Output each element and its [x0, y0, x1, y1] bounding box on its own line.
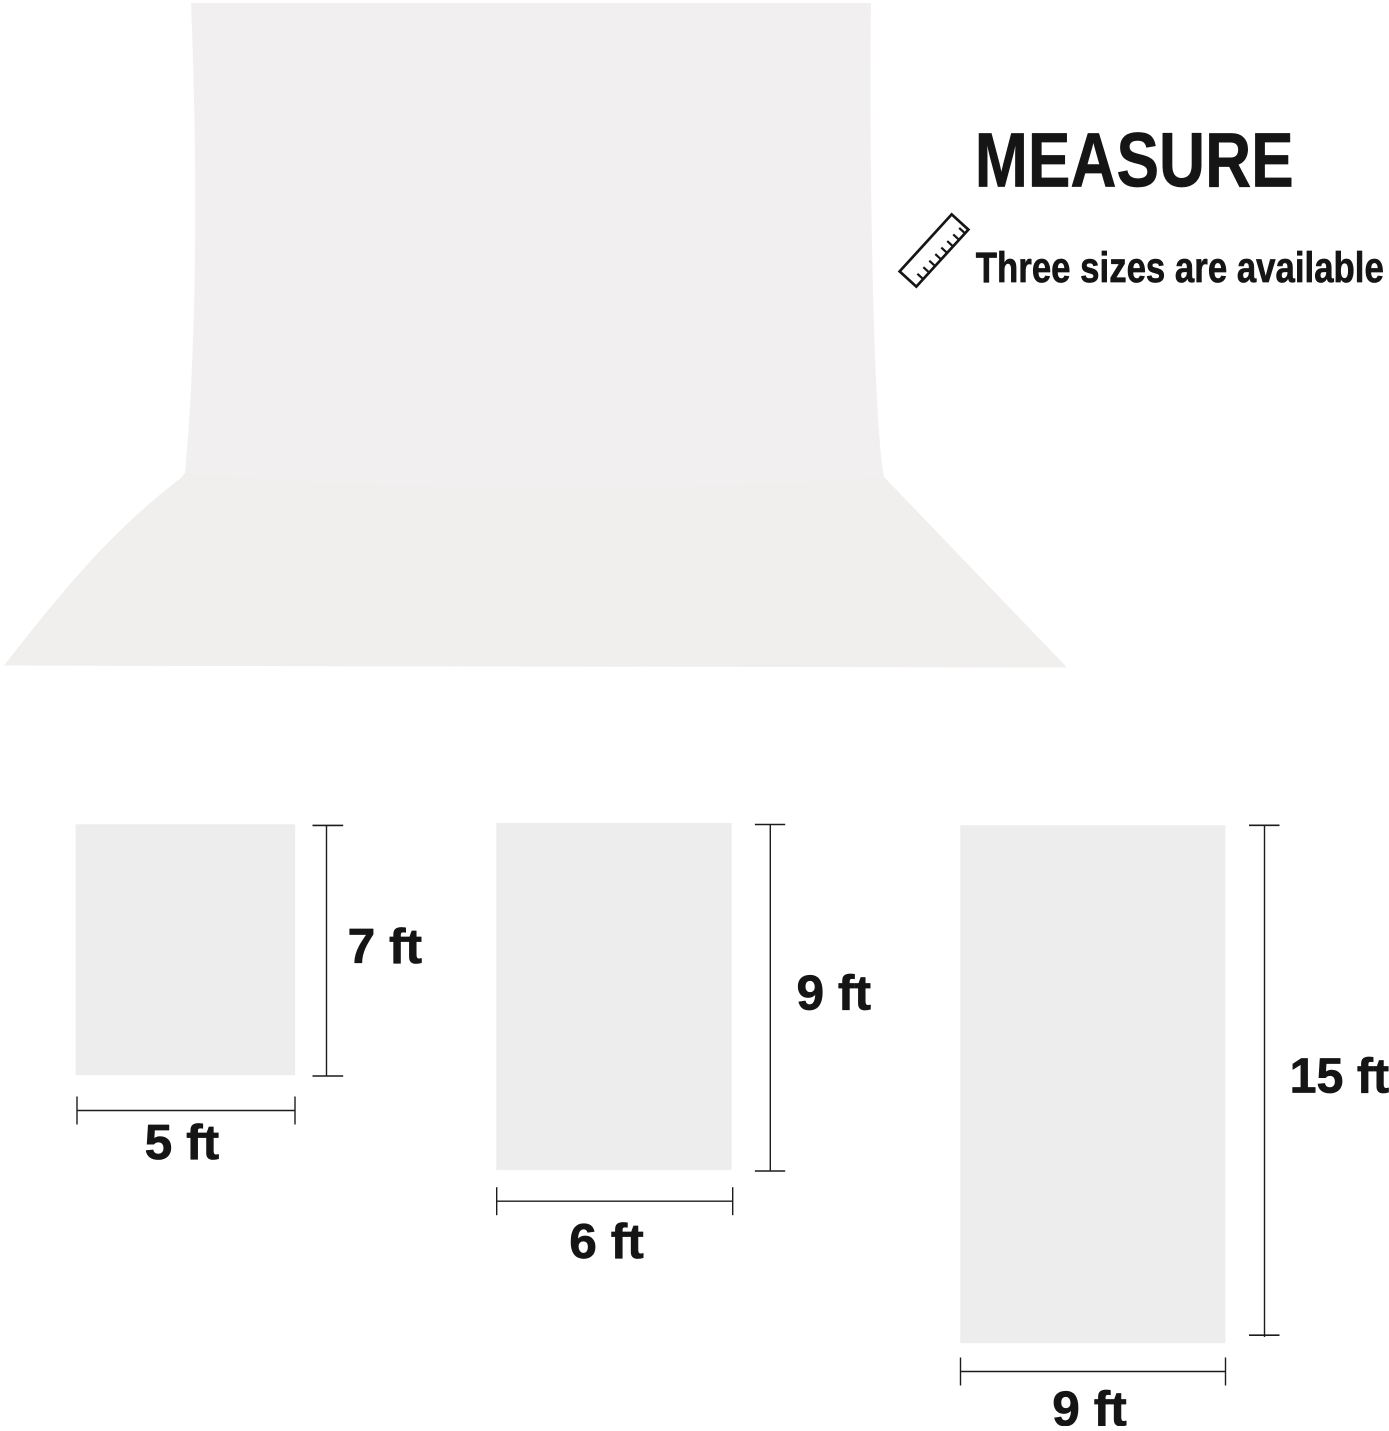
- svg-text:Three sizes are available: Three sizes are available: [976, 244, 1384, 292]
- svg-text:MEASURE: MEASURE: [975, 118, 1294, 204]
- svg-text:5 ft: 5 ft: [145, 1115, 220, 1170]
- svg-text:15 ft: 15 ft: [1290, 1048, 1389, 1103]
- svg-text:9 ft: 9 ft: [797, 965, 872, 1020]
- svg-text:7 ft: 7 ft: [348, 919, 423, 974]
- svg-text:9 ft: 9 ft: [1052, 1381, 1127, 1426]
- svg-text:6 ft: 6 ft: [569, 1214, 644, 1269]
